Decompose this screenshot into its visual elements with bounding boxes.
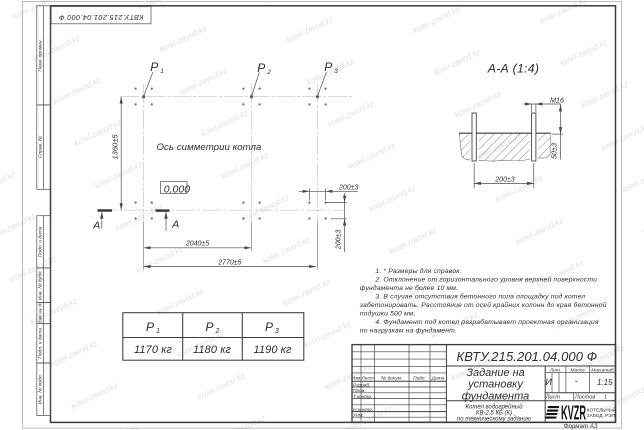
svg-text:КВ-2,5 КБ (К): КВ-2,5 КБ (К) bbox=[476, 410, 512, 416]
svg-text:1170 кг: 1170 кг bbox=[134, 344, 173, 356]
svg-text:подушки 500 мм.: подушки 500 мм. bbox=[360, 309, 416, 317]
svg-text:P: P bbox=[206, 320, 214, 334]
svg-text:М16: М16 bbox=[550, 95, 564, 104]
svg-text:И: И bbox=[545, 377, 552, 387]
svg-text:0,000: 0,000 bbox=[164, 183, 190, 195]
svg-text:Н.контр.: Н.контр. bbox=[353, 407, 373, 413]
svg-text:Справ. №: Справ. № bbox=[38, 136, 44, 158]
svg-text:КВТУ.215.201.04.000 Ф: КВТУ.215.201.04.000 Ф bbox=[58, 13, 143, 22]
svg-text:2040±5: 2040±5 bbox=[185, 240, 209, 247]
svg-text:Масса: Масса bbox=[571, 367, 586, 373]
svg-text:3. В случае отсутствия бетонно: 3. В случае отсутствия бетонного пола пл… bbox=[375, 292, 585, 300]
svg-text:Лит.: Лит. bbox=[549, 367, 561, 373]
svg-text:Разраб.: Разраб. bbox=[353, 382, 370, 388]
svg-text:Утв.: Утв. bbox=[353, 413, 364, 419]
svg-text:1: 1 bbox=[604, 394, 607, 400]
svg-text:P: P bbox=[150, 60, 158, 74]
svg-text:Масштаб: Масштаб bbox=[591, 367, 614, 373]
svg-text:КВТУ.215.201.04.000 Ф: КВТУ.215.201.04.000 Ф bbox=[457, 349, 598, 364]
svg-text:2770±5: 2770±5 bbox=[217, 260, 241, 267]
svg-text:Подп. и дата: Подп. и дата bbox=[38, 226, 44, 257]
svg-text:фундамента: фундамента bbox=[462, 390, 530, 402]
svg-text:Пров.: Пров. bbox=[353, 388, 366, 394]
svg-text:2: 2 bbox=[266, 69, 271, 76]
svg-text:200±3: 200±3 bbox=[335, 230, 342, 251]
svg-text:Инв. № подл.: Инв. № подл. bbox=[38, 374, 44, 404]
svg-text:Котел водогрейный: Котел водогрейный bbox=[465, 403, 523, 410]
svg-text:Перв. примен.: Перв. примен. bbox=[38, 39, 44, 72]
svg-text:-: - bbox=[575, 376, 578, 386]
svg-text:А: А bbox=[92, 219, 100, 231]
svg-text:1180 кг: 1180 кг bbox=[193, 344, 232, 356]
svg-text:Т.контр.: Т.контр. bbox=[353, 394, 372, 400]
svg-text:Дата: Дата bbox=[431, 376, 445, 382]
svg-text:фундамента не более 10 мм.: фундамента не более 10 мм. bbox=[360, 284, 458, 292]
svg-text:200±3: 200±3 bbox=[494, 177, 515, 184]
svg-text:3: 3 bbox=[275, 328, 279, 335]
svg-text:3: 3 bbox=[334, 68, 338, 75]
svg-text:забетонировать. Расстояние от: забетонировать. Расстояние от осей крайн… bbox=[359, 301, 607, 309]
svg-text:№ докум.: № докум. bbox=[381, 376, 402, 382]
svg-text:P: P bbox=[265, 320, 273, 334]
svg-text:ЗАВОД, РЭП: ЗАВОД, РЭП bbox=[587, 413, 615, 418]
svg-text:Задание на: Задание на bbox=[466, 367, 525, 379]
svg-text:Формат А3: Формат А3 bbox=[564, 423, 598, 430]
svg-text:Листов: Листов bbox=[574, 395, 595, 401]
svg-text:2. Отклонение от горизонтально: 2. Отклонение от горизонтального уровня … bbox=[374, 275, 597, 283]
svg-text:Взам. инв. №: Взам. инв. № bbox=[38, 303, 44, 323]
svg-text:Подп. и дата: Подп. и дата bbox=[38, 328, 44, 359]
svg-text:А: А bbox=[171, 219, 179, 231]
svg-text:50±3: 50±3 bbox=[550, 143, 559, 159]
svg-text:1. * Размеры для справок.: 1. * Размеры для справок. bbox=[375, 267, 461, 275]
svg-text:P: P bbox=[146, 320, 154, 334]
svg-text:KVZR: KVZR bbox=[561, 403, 586, 425]
svg-text:Подп.: Подп. bbox=[413, 376, 426, 382]
svg-text:1190 кг: 1190 кг bbox=[253, 344, 292, 356]
svg-text:Лист: Лист bbox=[361, 376, 374, 382]
svg-text:Лист: Лист bbox=[545, 395, 561, 401]
svg-text:P: P bbox=[324, 60, 332, 74]
svg-text:P: P bbox=[257, 61, 265, 75]
svg-text:4. Фундамент под котел разраба: 4. Фундамент под котел разрабатывает про… bbox=[375, 318, 599, 326]
svg-text:200±3: 200±3 bbox=[338, 184, 359, 191]
svg-text:по нагрузкам на фундамент.: по нагрузкам на фундамент. bbox=[360, 326, 457, 334]
svg-text:по техническому заданию: по техническому заданию bbox=[457, 417, 532, 423]
svg-text:Ось симметрии котла: Ось симметрии котла bbox=[157, 142, 262, 153]
svg-text:А-А (1:4): А-А (1:4) bbox=[487, 62, 539, 76]
svg-text:1360±5: 1360±5 bbox=[110, 134, 119, 160]
svg-text:Изм.: Изм. bbox=[351, 376, 361, 382]
svg-text:КОТЕЛЬНЫЙ: КОТЕЛЬНЫЙ bbox=[587, 405, 616, 412]
svg-text:2: 2 bbox=[215, 328, 220, 335]
svg-text:1: 1 bbox=[156, 328, 160, 335]
svg-text:1: 1 bbox=[160, 68, 164, 75]
svg-text:1:15: 1:15 bbox=[597, 378, 613, 387]
svg-text:Инв. № дубл.: Инв. № дубл. bbox=[38, 270, 44, 300]
svg-text:установку: установку bbox=[467, 379, 524, 391]
